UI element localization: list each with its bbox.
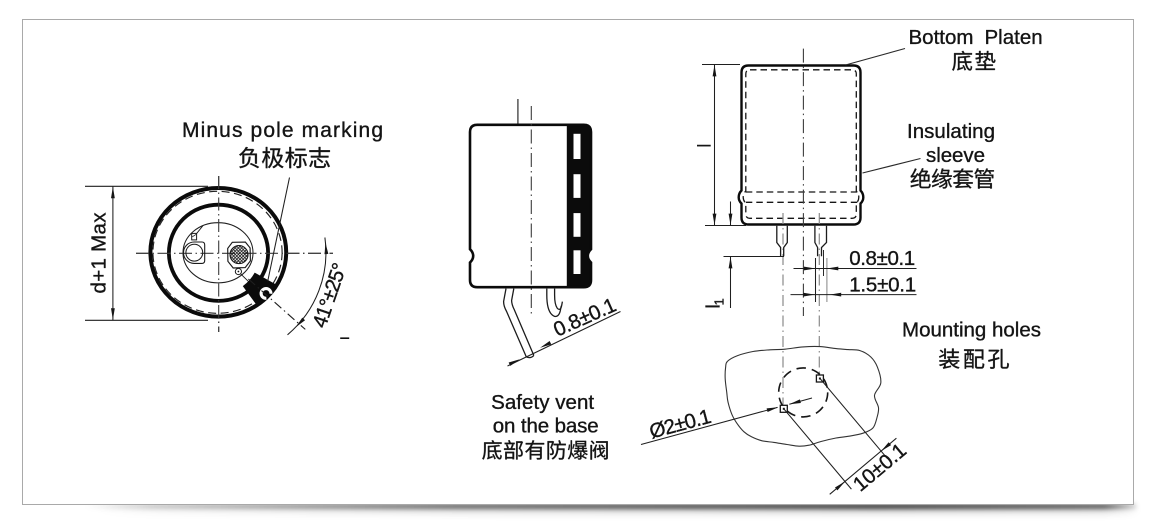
svg-text:1: 1 — [712, 298, 727, 305]
svg-text:Safety vent: Safety vent — [491, 391, 594, 414]
svg-text:d+1 Max: d+1 Max — [88, 212, 111, 294]
svg-text:Platen: Platen — [985, 26, 1043, 49]
svg-text:1.5±0.1: 1.5±0.1 — [849, 273, 916, 296]
svg-text:Bottom: Bottom — [909, 26, 974, 49]
svg-text:Mounting holes: Mounting holes — [902, 319, 1041, 342]
svg-text:0.8±0.1: 0.8±0.1 — [849, 247, 915, 270]
svg-text:sleeve: sleeve — [926, 144, 985, 167]
svg-text:Minus pole marking: Minus pole marking — [182, 119, 383, 142]
svg-text:Insulating: Insulating — [907, 120, 995, 143]
svg-text:on the base: on the base — [493, 415, 599, 438]
